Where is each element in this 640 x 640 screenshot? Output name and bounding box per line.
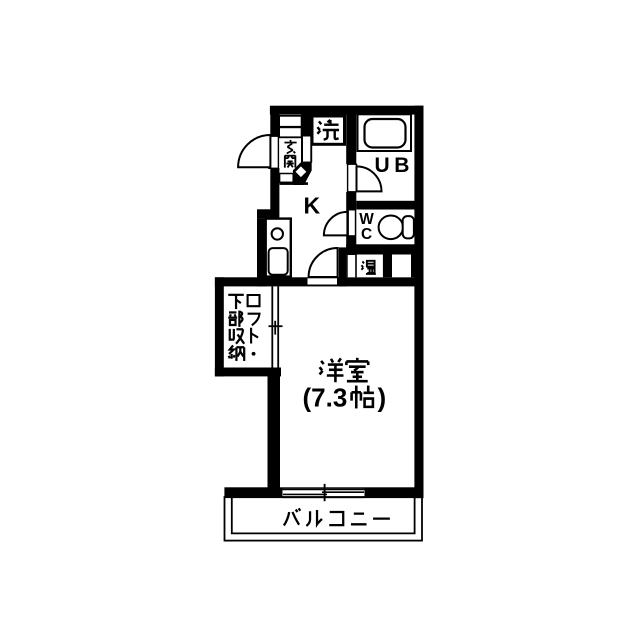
svg-text:C: C [361, 226, 372, 243]
svg-text:): ) [378, 383, 387, 413]
svg-text:K: K [304, 192, 321, 218]
svg-text:(7.3: (7.3 [303, 383, 348, 413]
svg-text:UB: UB [375, 154, 415, 177]
